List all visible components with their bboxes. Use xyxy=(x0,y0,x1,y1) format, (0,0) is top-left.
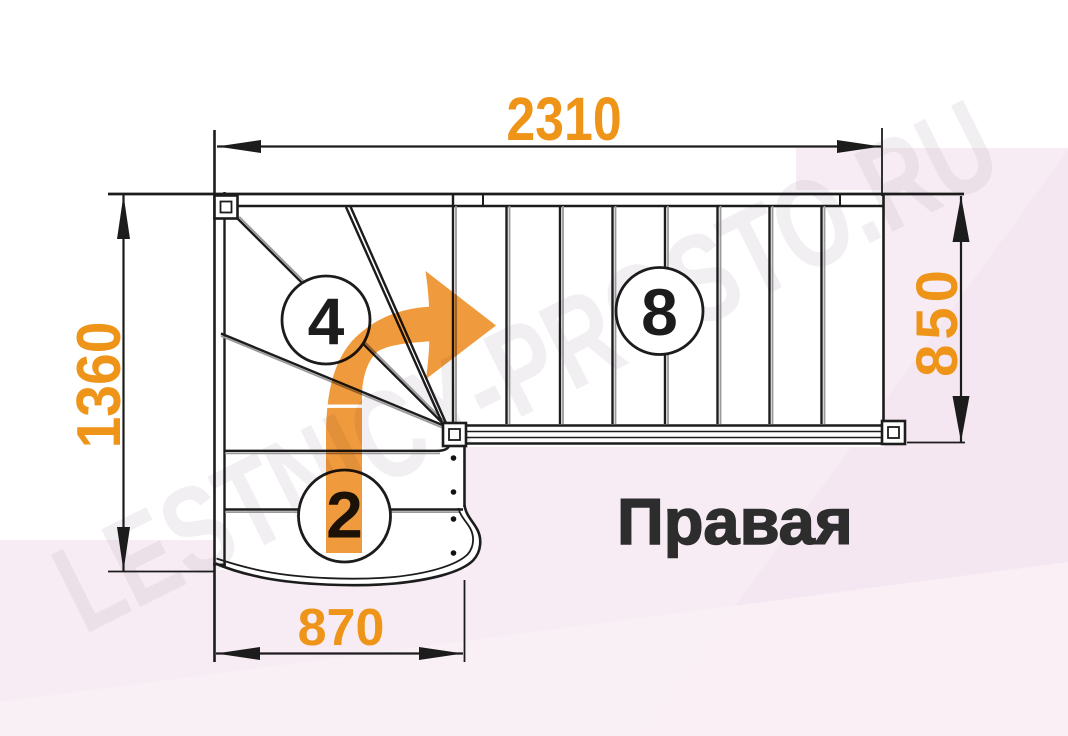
svg-text:4: 4 xyxy=(308,284,345,358)
svg-text:850: 850 xyxy=(905,265,970,377)
svg-text:Правая: Правая xyxy=(617,485,853,558)
svg-text:1360: 1360 xyxy=(64,322,134,449)
svg-text:870: 870 xyxy=(298,599,385,657)
svg-text:2310: 2310 xyxy=(506,85,621,153)
svg-text:8: 8 xyxy=(641,275,678,349)
